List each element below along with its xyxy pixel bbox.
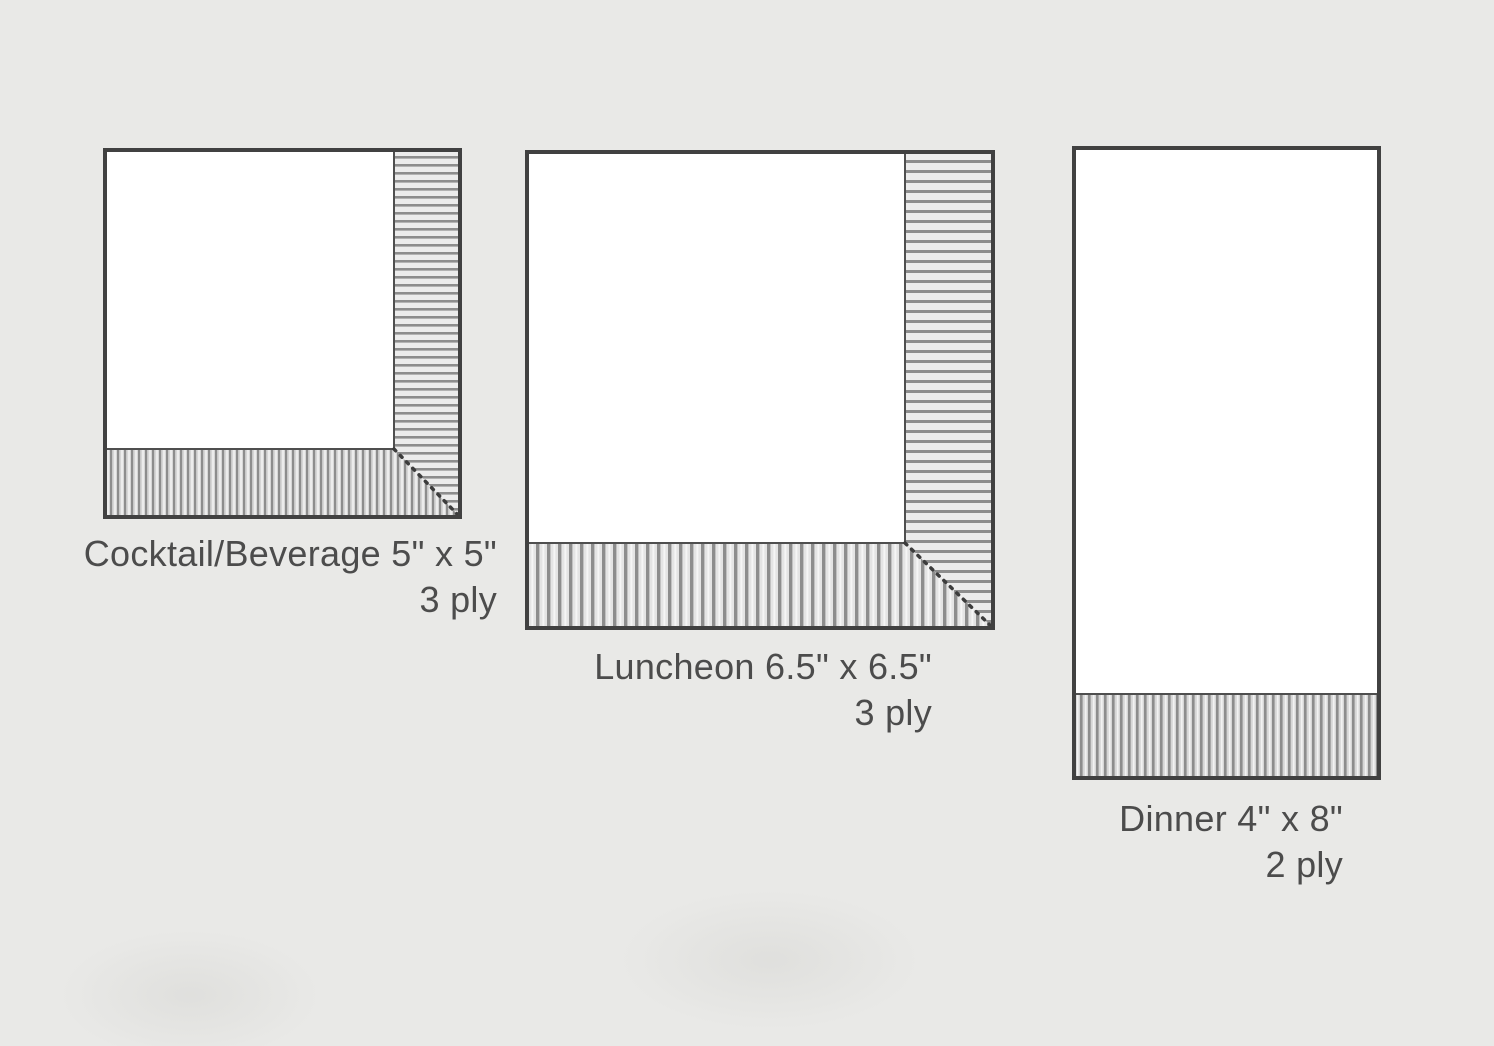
- dinner-napkin-graphic: [1072, 146, 1381, 780]
- dinner-napkin-ply: 2 ply: [1050, 842, 1343, 888]
- luncheon-napkin-label: Luncheon 6.5" x 6.5": [594, 646, 932, 687]
- cocktail-napkin-ply: 3 ply: [62, 577, 497, 623]
- folded-edge-bottom: [1074, 694, 1379, 778]
- napkin-body: [1074, 148, 1379, 778]
- cocktail-napkin-graphic: [103, 148, 462, 519]
- napkin-size-diagram: Cocktail/Beverage 5" x 5" 3 ply: [0, 0, 1494, 1046]
- cocktail-napkin-caption: Cocktail/Beverage 5" x 5" 3 ply: [62, 531, 497, 623]
- cocktail-napkin-label: Cocktail/Beverage 5" x 5": [84, 533, 497, 574]
- dinner-napkin-figure: [1072, 146, 1381, 780]
- cocktail-napkin-figure: [103, 148, 462, 519]
- background-smudge: [60, 930, 320, 1046]
- dinner-napkin-caption: Dinner 4" x 8" 2 ply: [1050, 796, 1343, 888]
- luncheon-napkin-caption: Luncheon 6.5" x 6.5" 3 ply: [560, 644, 932, 736]
- luncheon-napkin-ply: 3 ply: [560, 690, 932, 736]
- luncheon-napkin-graphic: [525, 150, 995, 630]
- dinner-napkin-label: Dinner 4" x 8": [1119, 798, 1343, 839]
- background-smudge: [620, 890, 920, 1030]
- luncheon-napkin-figure: [525, 150, 995, 630]
